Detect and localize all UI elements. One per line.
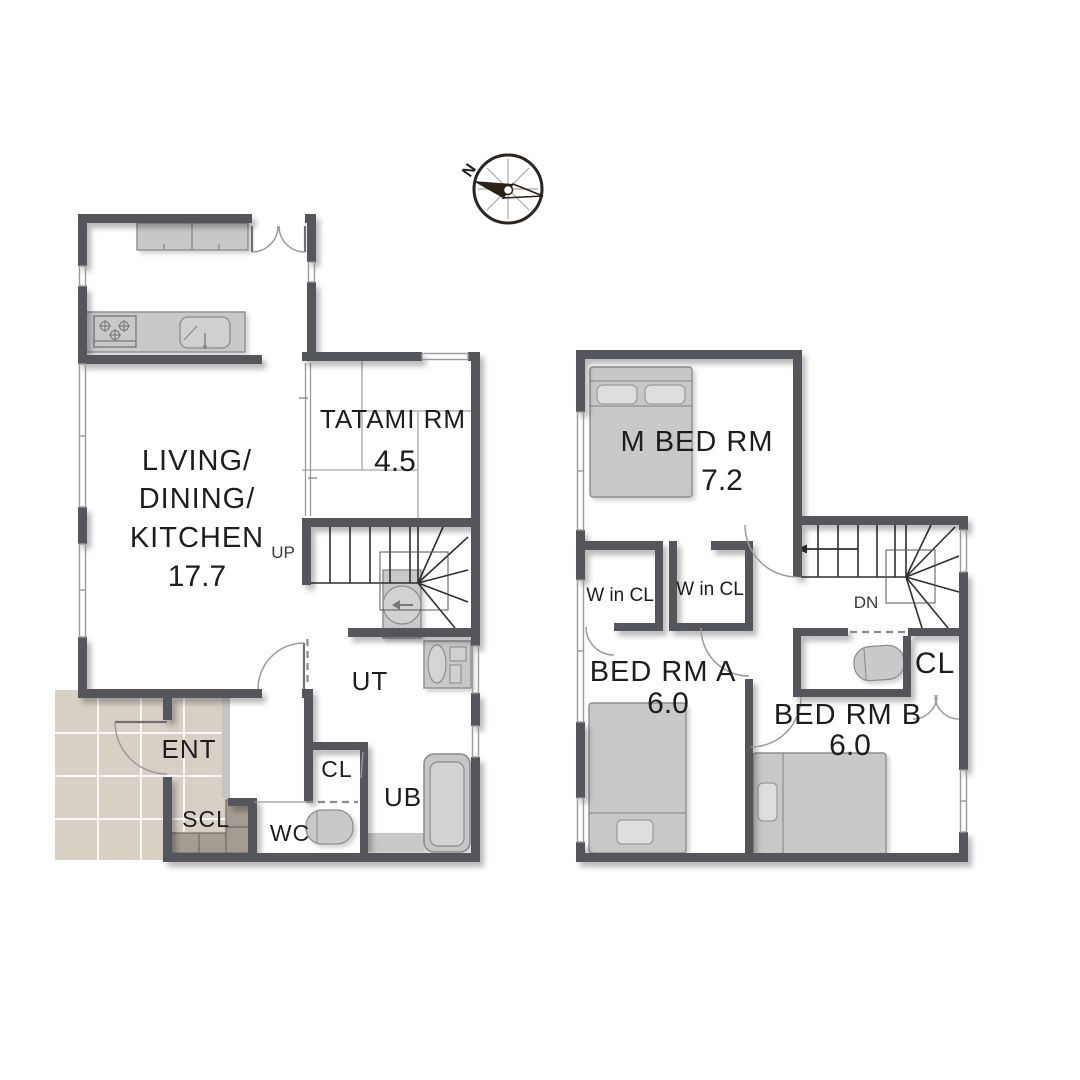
shoe-closet-label: SCL: [182, 806, 230, 832]
toilet-2f-icon: [853, 644, 905, 681]
floor-plan-page: N: [0, 0, 1080, 1080]
bath-label: UB: [384, 782, 422, 812]
toilet-icon: [306, 810, 353, 844]
utility-label: UT: [352, 666, 389, 696]
washing-machine-icon: [424, 641, 471, 688]
ldk-label-line1: LIVING/: [142, 445, 252, 477]
closet-label-1f: CL: [321, 756, 352, 782]
bedroom-a-bed: [589, 703, 686, 853]
entrance-step-edge: [222, 698, 230, 798]
stairs-down-label: DN: [854, 593, 879, 612]
master-bedroom-area: 7.2: [701, 464, 743, 497]
stairs-up-label: UP: [271, 543, 295, 562]
master-bedroom-label: M BED RM: [621, 426, 774, 458]
washbasin-icon: [383, 570, 421, 638]
ldk-area: 17.7: [168, 560, 226, 593]
tatami-room-area: 4.5: [374, 445, 416, 478]
compass-icon: N: [459, 155, 543, 223]
ldk-tatami-sliding-door: [299, 363, 317, 516]
ldk-label-line3: KITCHEN: [130, 522, 264, 554]
bedroom-b-bed: [753, 753, 886, 855]
tatami-room-label: TATAMI RM: [320, 404, 466, 434]
tatami-mat-lines: [302, 361, 471, 518]
closet-label-2f: CL: [915, 647, 955, 680]
bedroom-b-area: 6.0: [829, 729, 871, 762]
entrance-label: ENT: [162, 734, 217, 764]
walk-in-closet-left-label: W in CL: [586, 585, 654, 606]
walk-in-closet-right-label: W in CL: [676, 579, 744, 600]
toilet-label: WC: [270, 820, 310, 846]
floor-plan-canvas: N: [0, 0, 1080, 1080]
stairs-second-floor: [797, 525, 959, 628]
bedroom-a-label: BED RM A: [590, 656, 737, 688]
kitchen-upper-cabinet: [137, 223, 248, 250]
first-floor: LIVING/ DINING/ KITCHEN 17.7 TATAMI RM 4…: [55, 214, 480, 862]
ldk-label-line2: DINING/: [139, 483, 256, 515]
second-floor: M BED RM 7.2 W in CL W in CL DN BED RM A…: [576, 350, 968, 862]
bedroom-b-label: BED RM B: [774, 699, 922, 731]
bedroom-a-area: 6.0: [647, 687, 689, 720]
kitchen-sink-icon: [180, 317, 230, 349]
